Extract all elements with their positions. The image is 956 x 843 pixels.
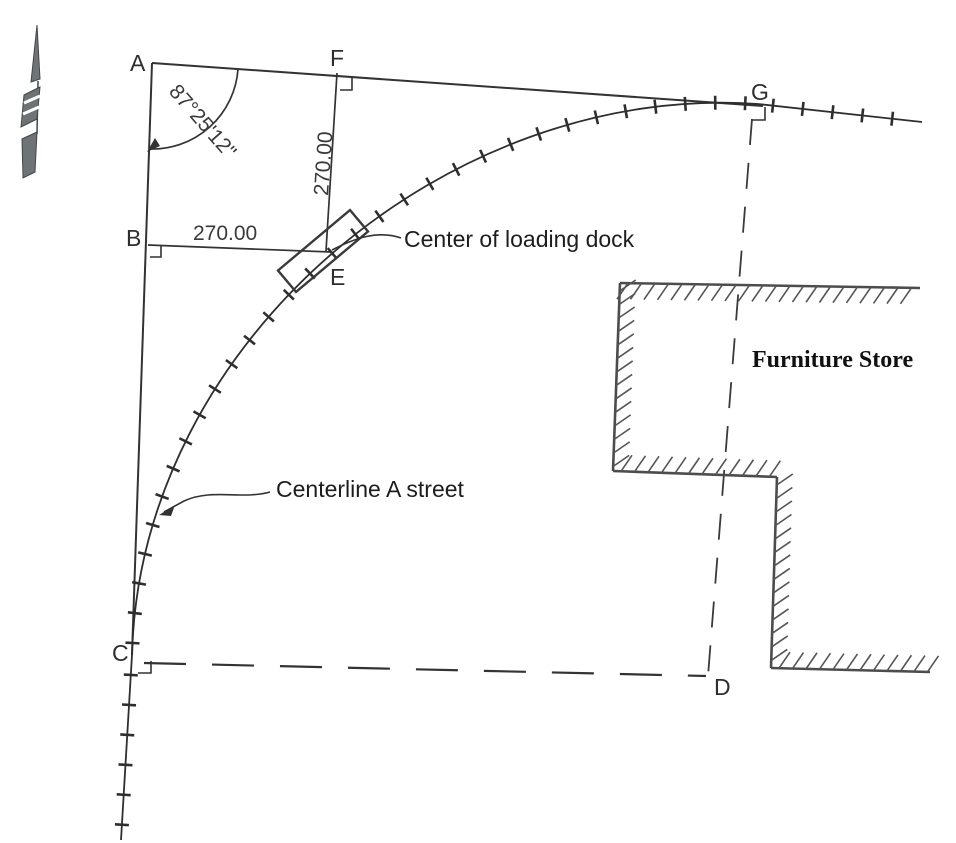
right-angle-mark-f (340, 78, 352, 90)
point-label-g: G (751, 79, 769, 105)
point-label-f: F (330, 45, 344, 71)
centerline-label: Centerline A street (276, 476, 465, 502)
centerline-leader-arrowhead (159, 505, 175, 516)
angle-label: 87°25'12" (164, 80, 240, 163)
street-centerline-curve (132, 103, 758, 655)
loading-dock-leader (332, 235, 401, 250)
furniture-store-label: Furniture Store (752, 347, 913, 373)
point-label-a: A (130, 50, 146, 76)
street-centerline-south (121, 655, 132, 840)
property-line-c-d (144, 663, 706, 676)
loading-dock-label: Center of loading dock (404, 226, 635, 252)
right-angle-mark-b (150, 246, 161, 257)
point-label-d: D (714, 674, 731, 700)
tangent-line-a-g (152, 63, 763, 106)
plan-canvas: 87°25'12" Center of loading dock Centerl… (0, 0, 956, 843)
property-line-g-d (708, 119, 752, 676)
right-angle-mark-g (751, 107, 765, 120)
point-label-e: E (330, 264, 345, 290)
street-centerline-east (758, 104, 922, 122)
centerline-ticks (115, 96, 893, 825)
dimension-label-b-e: 270.00 (193, 222, 257, 245)
point-label-b: B (126, 225, 141, 251)
furniture-store-walls (613, 283, 930, 672)
centerline-leader (164, 492, 270, 512)
dimension-label-f-e: 270.00 (310, 131, 337, 197)
north-arrow-icon (21, 25, 40, 178)
point-label-c: C (112, 640, 129, 666)
survey-plan-drawing: 87°25'12" Center of loading dock Centerl… (0, 0, 956, 843)
